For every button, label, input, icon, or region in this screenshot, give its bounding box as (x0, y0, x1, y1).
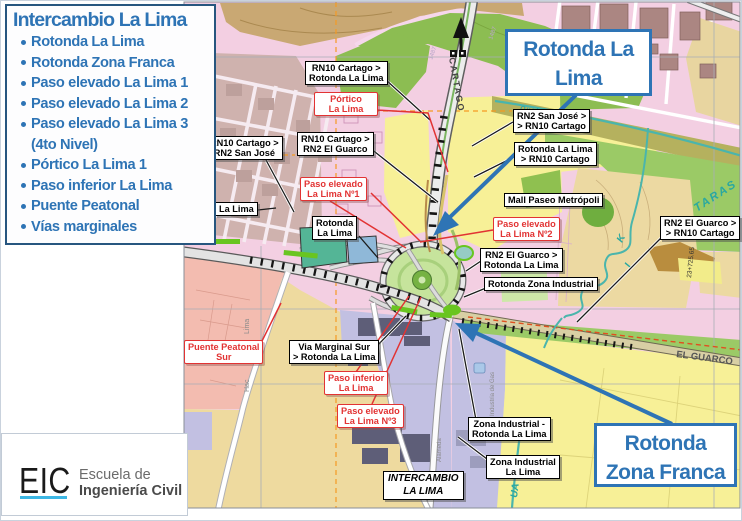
svg-text:Industria de Gas: Industria de Gas (490, 372, 496, 416)
svg-text:UA: UA (509, 483, 522, 499)
svg-text:Lima: Lima (244, 319, 251, 334)
svg-text:Hac: Hac (244, 379, 251, 392)
svg-text:Alameda: Alameda (437, 438, 443, 462)
